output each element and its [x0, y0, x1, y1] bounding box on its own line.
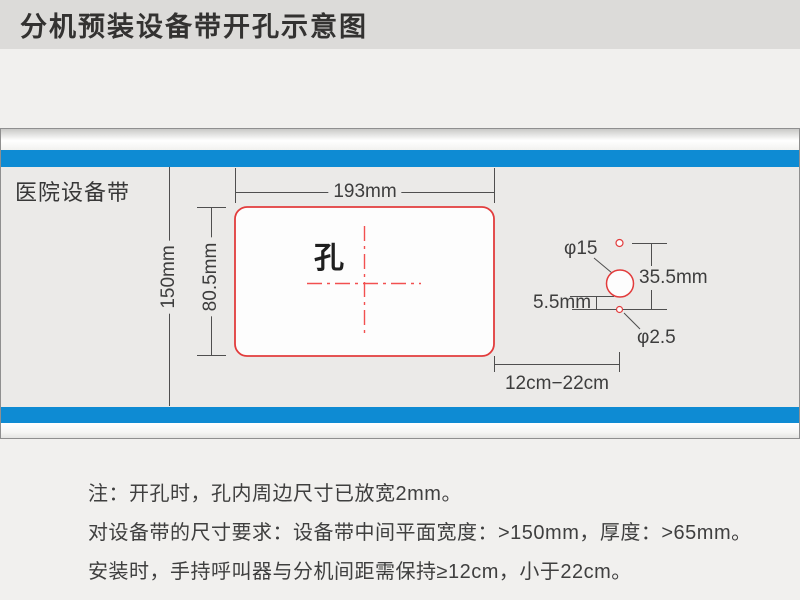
dim-label-phi15: φ15: [564, 238, 597, 260]
dim-label-phi2-5: φ2.5: [637, 327, 676, 349]
band-top-blue-stripe: [1, 150, 799, 167]
band-top-edge: [1, 129, 799, 150]
dim-label-80-5mm: 80.5mm: [200, 238, 222, 317]
note-line-3: 安装时，手持呼叫器与分机间距需保持≥12cm，小于22cm。: [88, 555, 752, 584]
dim-label-193mm: 193mm: [328, 181, 401, 203]
title-bar: 分机预装设备带开孔示意图: [0, 0, 800, 49]
band-bottom-edge: [1, 423, 799, 438]
band-label: 医院设备带: [15, 175, 130, 207]
diagram-page: 分机预装设备带开孔示意图: [0, 0, 800, 600]
dim-label-12-22cm: 12cm−22cm: [505, 373, 609, 395]
note-line-2: 对设备带的尺寸要求：设备带中间平面宽度：>150mm，厚度：>65mm。: [88, 516, 752, 545]
page-title: 分机预装设备带开孔示意图: [0, 5, 368, 44]
band-bottom-blue-stripe: [1, 407, 799, 423]
dim-label-5-5mm: 5.5mm: [533, 292, 591, 314]
notes-block: 注：开孔时，孔内周边尺寸已放宽2mm。 对设备带的尺寸要求：设备带中间平面宽度：…: [88, 477, 752, 594]
dim-label-150mm: 150mm: [158, 240, 180, 313]
dim-label-35-5mm: 35.5mm: [636, 266, 711, 290]
hole-character-label: 孔: [314, 233, 344, 277]
note-line-1: 注：开孔时，孔内周边尺寸已放宽2mm。: [88, 477, 752, 506]
